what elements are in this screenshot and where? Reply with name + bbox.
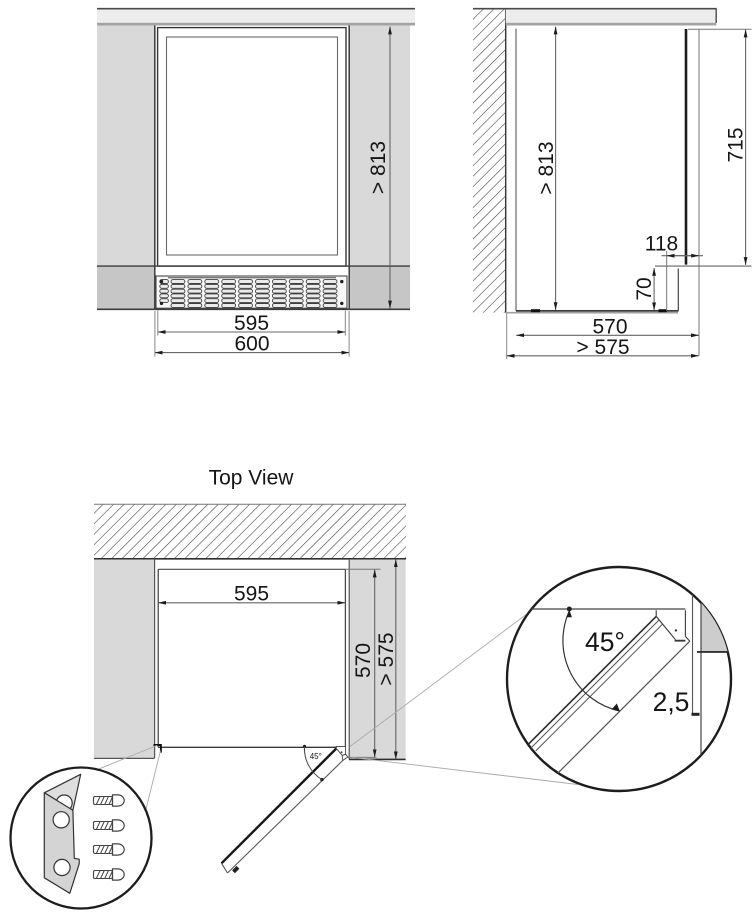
svg-text:2,5: 2,5 (653, 687, 690, 717)
svg-text:> 575: > 575 (576, 336, 629, 359)
svg-text:715: 715 (725, 127, 748, 162)
svg-text:570: 570 (352, 643, 375, 678)
svg-text:600: 600 (234, 333, 269, 356)
svg-text:> 813: > 813 (535, 141, 558, 194)
svg-text:595: 595 (234, 312, 269, 335)
svg-text:> 813: > 813 (367, 141, 390, 194)
svg-text:> 575: > 575 (375, 632, 398, 685)
svg-text:70: 70 (633, 277, 656, 300)
svg-text:Top View: Top View (209, 467, 295, 490)
svg-text:118: 118 (645, 233, 678, 256)
svg-text:45°: 45° (310, 752, 322, 761)
svg-text:595: 595 (234, 582, 269, 605)
svg-text:45°: 45° (585, 627, 625, 657)
